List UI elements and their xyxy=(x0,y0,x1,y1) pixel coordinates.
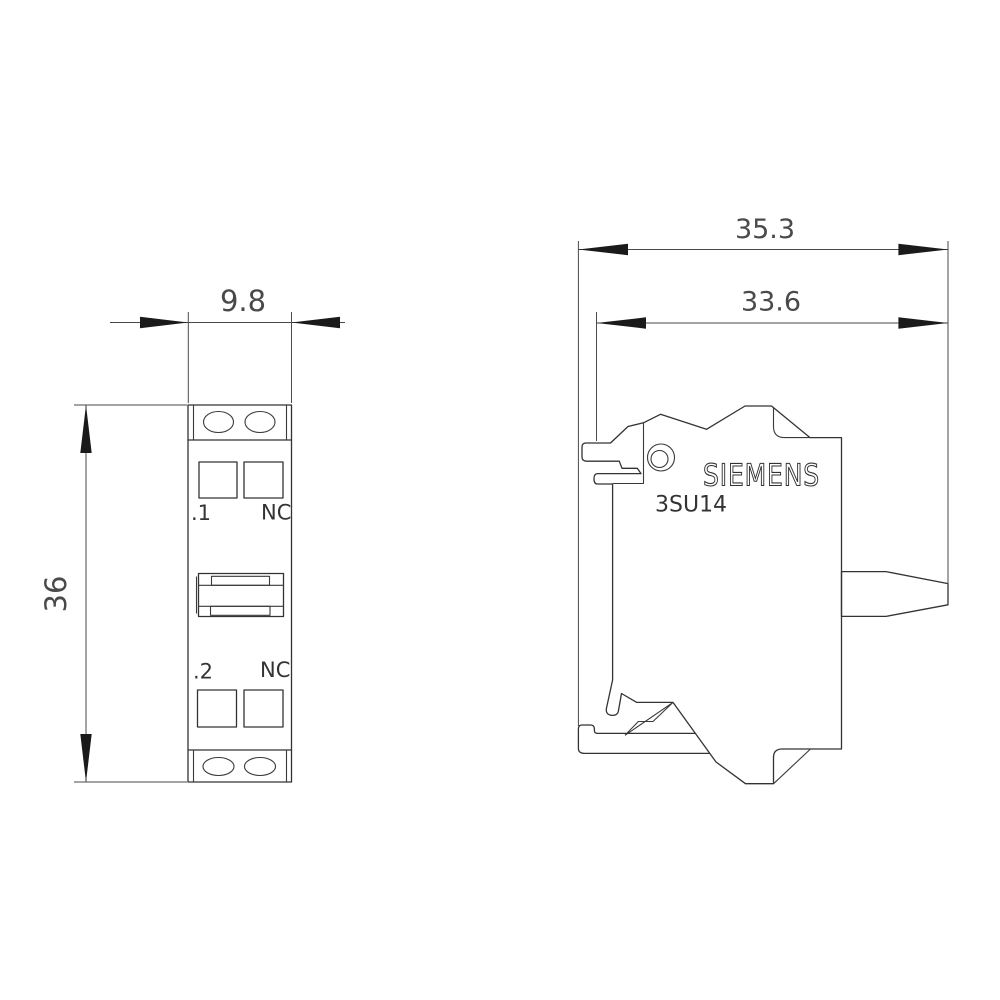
side-latch-wedge xyxy=(625,702,673,735)
latch-slot-bottom xyxy=(211,606,271,615)
body-depth-arrowhead-left xyxy=(597,317,647,328)
height-arrowhead-bottom xyxy=(80,734,91,782)
overall-depth-dimension-value: 35.3 xyxy=(735,214,795,245)
overall-depth-arrowhead-right xyxy=(898,244,948,255)
side-screw-inner xyxy=(651,451,668,468)
contact-window-row1-left xyxy=(199,462,237,498)
top-terminal-screw-right xyxy=(245,412,275,433)
latch-slot-top xyxy=(212,576,270,585)
dimension-width: 9.8 xyxy=(110,284,345,403)
side-front-face-edge xyxy=(613,423,644,484)
brand-logo-text: SIEMENS xyxy=(703,459,820,494)
width-arrowhead-left xyxy=(140,317,188,328)
top-terminal-screw-left xyxy=(204,412,234,433)
technical-drawing-page: .1 NC .2 NC 9.8 xyxy=(0,0,1000,1000)
bottom-terminal-screw-left xyxy=(203,758,234,776)
body-depth-dimension-value: 33.6 xyxy=(741,287,801,318)
height-dimension-value: 36 xyxy=(39,576,73,613)
contact-window-row2-right xyxy=(244,690,283,727)
contact-label-row1-right: NC xyxy=(261,501,291,525)
front-latch xyxy=(197,574,284,617)
side-plunger xyxy=(842,572,949,617)
width-dimension-value: 9.8 xyxy=(220,284,266,318)
contact-label-row1-left: .1 xyxy=(191,501,211,525)
bottom-terminal-screw-right xyxy=(245,758,276,776)
dimension-height: 36 xyxy=(39,405,187,782)
side-foot-chamfer-edge xyxy=(774,749,811,783)
dimension-body-depth: 33.6 xyxy=(597,287,949,442)
contact-window-row1-right xyxy=(244,462,283,498)
contact-window-row2-left xyxy=(198,690,237,727)
overall-depth-arrowhead-left xyxy=(578,244,628,255)
dimensional-drawing: .1 NC .2 NC 9.8 xyxy=(0,0,1000,1000)
contact-label-row2-left: .2 xyxy=(193,660,213,684)
contact-label-row2-right: NC xyxy=(260,658,290,682)
product-code-text: 3SU14 xyxy=(655,493,727,518)
side-view: SIEMENS 3SU14 xyxy=(578,406,948,784)
front-view: .1 NC .2 NC xyxy=(188,405,292,782)
body-depth-arrowhead-right xyxy=(898,317,948,328)
side-bottom-bracket xyxy=(578,725,709,753)
height-arrowhead-top xyxy=(80,405,91,453)
width-arrowhead-right xyxy=(292,317,341,328)
